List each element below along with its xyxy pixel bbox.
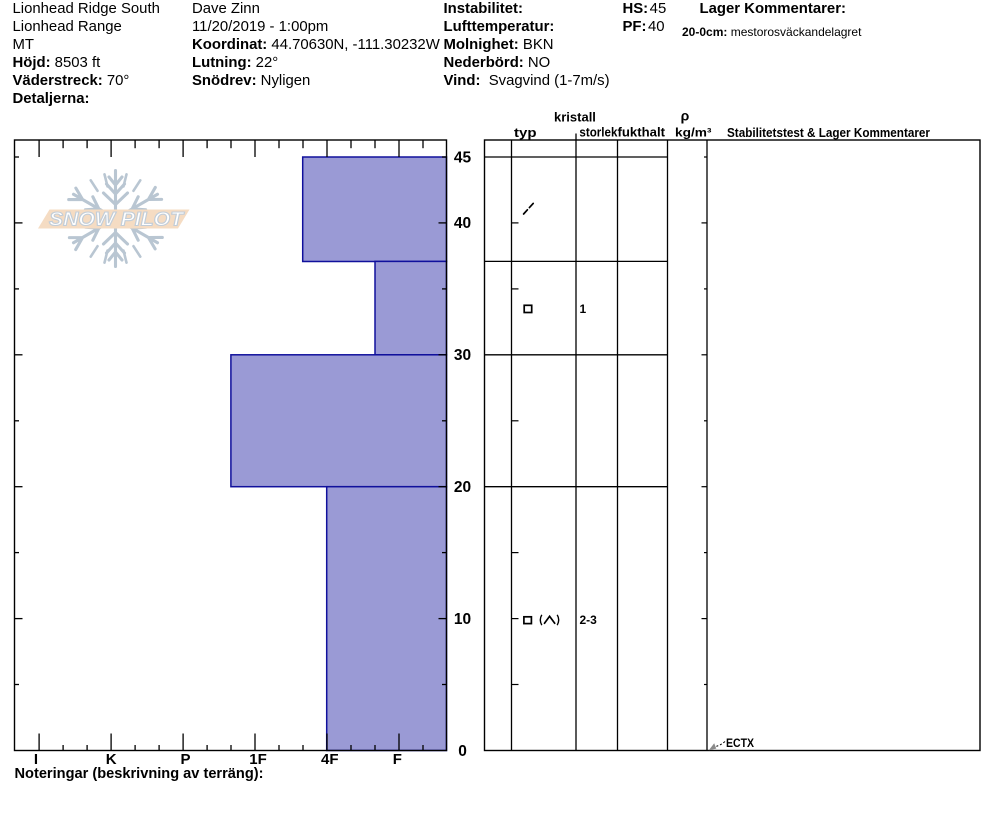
svg-text:0: 0 <box>458 743 467 760</box>
svg-text:1: 1 <box>580 302 587 316</box>
svg-text:typ: typ <box>514 125 537 140</box>
svg-text:Noteringar (beskrivning av ter: Noteringar (beskrivning av terräng): <box>15 766 264 782</box>
svg-text:10: 10 <box>454 611 471 628</box>
svg-text:ρ: ρ <box>681 108 690 124</box>
svg-text:storlek: storlek <box>579 125 618 140</box>
svg-text:40: 40 <box>454 215 471 232</box>
svg-text:45: 45 <box>454 149 472 166</box>
svg-text:2-3: 2-3 <box>580 613 598 627</box>
svg-text:20: 20 <box>454 479 471 496</box>
svg-text:F: F <box>393 751 402 768</box>
svg-text:Stabilitetstest & Lager Kommen: Stabilitetstest & Lager Kommentarer <box>727 125 930 140</box>
svg-text:kristall: kristall <box>554 110 596 125</box>
svg-text:SNOW PILOT: SNOW PILOT <box>49 209 185 231</box>
svg-text:4F: 4F <box>321 751 339 768</box>
svg-text:30: 30 <box>454 347 471 364</box>
svg-text:kg/m³: kg/m³ <box>675 125 712 139</box>
svg-text:ECTX: ECTX <box>726 738 754 750</box>
svg-text:fukthalt: fukthalt <box>618 125 666 140</box>
